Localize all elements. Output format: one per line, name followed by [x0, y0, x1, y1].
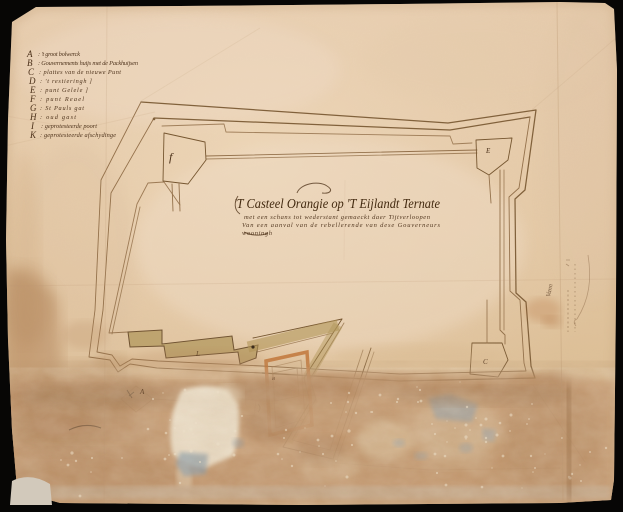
- svg-text:A: A: [139, 388, 145, 396]
- svg-text:'T Casteel Orangie op 'T Eijla: 'T Casteel Orangie op 'T Eijlandt Ternat…: [234, 196, 440, 211]
- svg-text:: plattes van de nieuwe Punt: : plattes van de nieuwe Punt: [39, 69, 121, 76]
- svg-text:: punt Gelele ]: : punt Gelele ]: [40, 87, 89, 94]
- svg-text:B: B: [272, 377, 275, 382]
- svg-text:met een schans tot wederstant: met een schans tot wederstant gemaeckt d…: [244, 214, 430, 221]
- svg-text:: 't groot bolwerck: : 't groot bolwerck: [38, 51, 80, 58]
- svg-text:: 't restieringh ]: : 't restieringh ]: [40, 78, 93, 85]
- svg-text:: punt Reael: : punt Reael: [40, 96, 84, 103]
- svg-text:L: L: [195, 350, 200, 358]
- svg-text:: geprotesteerde poort: : geprotesteerde poort: [41, 123, 97, 130]
- svg-text:: St Pauls gat: : St Pauls gat: [40, 105, 84, 112]
- svg-text:Van een aanval van de rebeller: Van een aanval van de rebellerende van d…: [242, 222, 440, 229]
- svg-text:K: K: [29, 130, 37, 140]
- svg-text:: Gouvernements huijs met de P: : Gouvernements huijs met de Packhuijsen: [38, 60, 138, 67]
- svg-text:E: E: [485, 147, 491, 155]
- svg-text:: geprotesteerde afschydinge: : geprotesteerde afschydinge: [40, 132, 116, 139]
- svg-text:C: C: [483, 358, 488, 366]
